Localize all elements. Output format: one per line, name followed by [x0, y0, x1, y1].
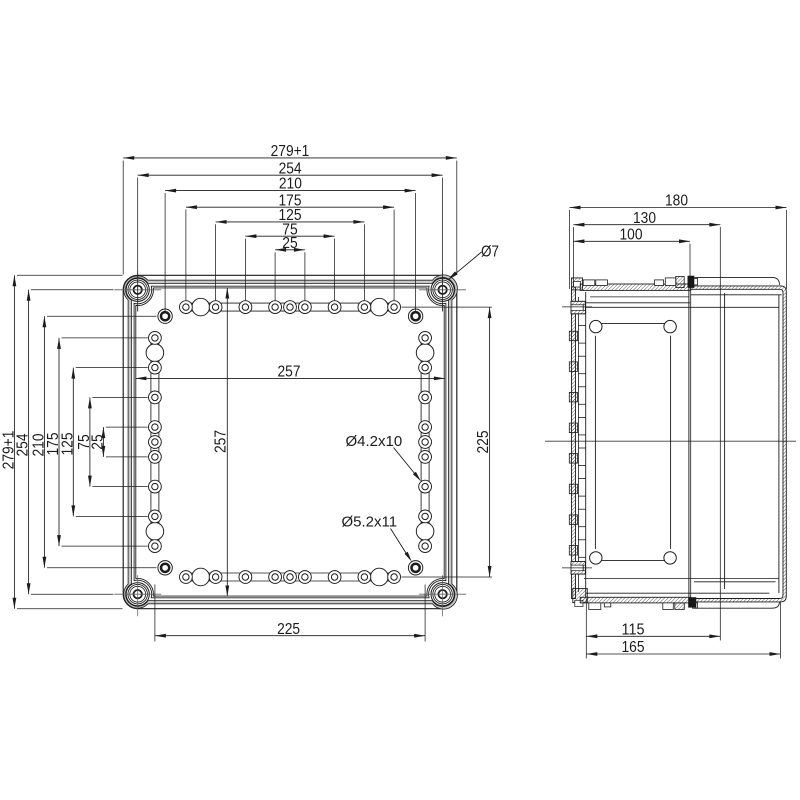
- svg-text:115: 115: [622, 621, 645, 638]
- svg-text:180: 180: [665, 193, 688, 210]
- svg-text:279+1: 279+1: [271, 143, 310, 160]
- svg-text:100: 100: [620, 226, 643, 243]
- svg-text:Ø5.2x11: Ø5.2x11: [342, 514, 398, 531]
- svg-text:210: 210: [279, 176, 302, 193]
- svg-text:257: 257: [213, 430, 230, 453]
- svg-text:130: 130: [633, 210, 656, 227]
- svg-text:25: 25: [89, 434, 106, 449]
- svg-text:257: 257: [278, 364, 301, 381]
- svg-text:225: 225: [277, 621, 300, 638]
- svg-text:Ø7: Ø7: [481, 243, 499, 260]
- svg-text:254: 254: [15, 433, 32, 456]
- svg-text:165: 165: [622, 639, 645, 656]
- svg-text:125: 125: [59, 432, 76, 455]
- svg-text:225: 225: [475, 430, 492, 453]
- svg-text:25: 25: [282, 235, 297, 252]
